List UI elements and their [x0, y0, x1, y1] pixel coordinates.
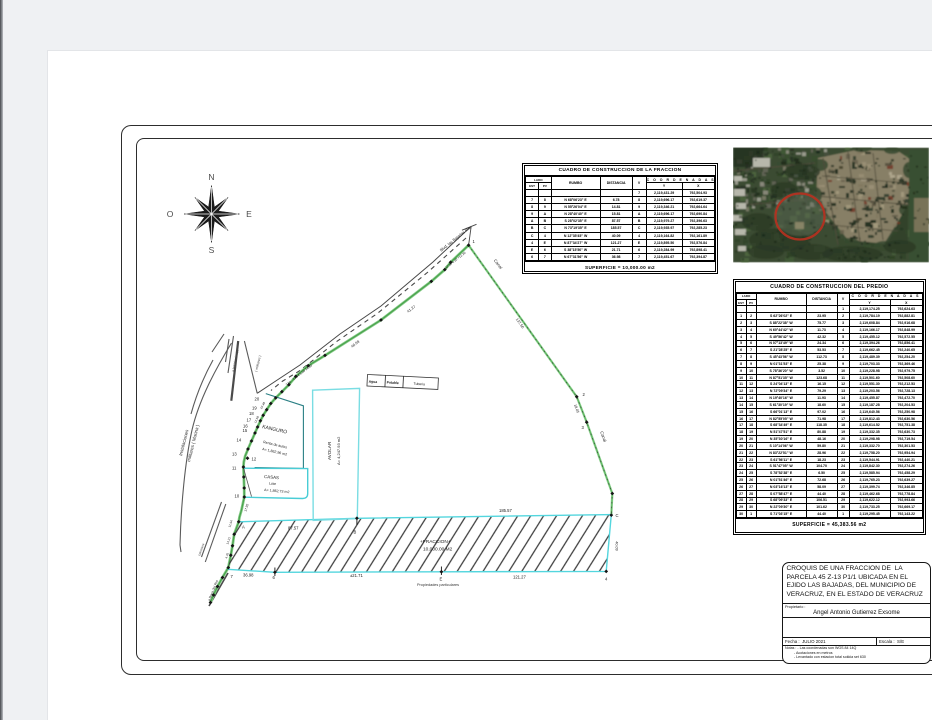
svg-text:20: 20	[255, 397, 260, 402]
svg-text:( militares ): ( militares )	[254, 355, 262, 372]
svg-text:36.98: 36.98	[243, 573, 254, 578]
svg-text:CASAS: CASAS	[264, 474, 279, 480]
svg-text:14: 14	[237, 438, 242, 443]
svg-text:S: S	[209, 245, 215, 255]
svg-text:2: 2	[583, 392, 586, 397]
svg-text:A= 4,247.93 m2: A= 4,247.93 m2	[336, 436, 341, 465]
svg-text:121.27: 121.27	[513, 575, 526, 580]
svg-text:10.48: 10.48	[259, 401, 266, 410]
svg-text:7: 7	[231, 574, 234, 579]
svg-text:12.04 5.00 14.63: 12.04 5.00 14.63	[292, 363, 313, 381]
svg-text:B: B	[354, 530, 357, 535]
svg-text:17.92: 17.92	[244, 503, 250, 512]
svg-text:Agua: Agua	[369, 380, 378, 384]
svg-text:41.27: 41.27	[406, 305, 416, 314]
svg-text:14.21: 14.21	[225, 536, 231, 545]
svg-text:1: 1	[473, 239, 476, 244]
svg-text:13: 13	[232, 452, 237, 457]
svg-text:19: 19	[252, 406, 257, 411]
svg-text:a Instalaciones: a Instalaciones	[231, 349, 240, 372]
svg-text:Canal: Canal	[599, 430, 607, 442]
svg-text:15: 15	[243, 428, 248, 433]
svg-text:11.94: 11.94	[228, 519, 234, 527]
svg-text:11: 11	[232, 466, 237, 471]
svg-text:10: 10	[235, 494, 240, 499]
svg-text:137.56: 137.56	[515, 318, 525, 330]
svg-text:3: 3	[582, 425, 585, 430]
svg-text:Lote: Lote	[269, 482, 276, 487]
svg-text:12: 12	[252, 457, 257, 462]
svg-text:N: N	[208, 172, 214, 182]
svg-text:Canal: Canal	[493, 258, 504, 270]
svg-text:KANGURO: KANGURO	[262, 424, 288, 436]
svg-text:185.57: 185.57	[499, 508, 512, 513]
svg-text:87.57: 87.57	[288, 526, 299, 531]
svg-text:E: E	[246, 209, 252, 219]
svg-text:militares ( Marina ): militares ( Marina )	[186, 424, 200, 463]
svg-text:40.09: 40.09	[615, 541, 619, 551]
svg-text:18: 18	[249, 411, 254, 416]
svg-text:Propiedades particulares: Propiedades particulares	[417, 583, 459, 587]
svg-text:O: O	[167, 209, 174, 219]
svg-text:A: A	[242, 525, 245, 530]
svg-text:+FRACCION+: +FRACCION+	[420, 539, 451, 545]
svg-text:C: C	[616, 513, 619, 518]
svg-text:4: 4	[605, 577, 608, 582]
svg-text:Tuberia: Tuberia	[414, 382, 426, 387]
svg-text:E: E	[440, 577, 443, 582]
svg-text:12.30 6.10 +12.20: 12.30 6.10 +12.20	[444, 251, 466, 270]
svg-text:Potable: Potable	[387, 380, 400, 385]
svg-text:±21.71: ±21.71	[350, 573, 363, 578]
svg-text:46.99: 46.99	[350, 340, 360, 349]
svg-text:AVOLAR: AVOLAR	[327, 441, 332, 460]
svg-text:A= 1,862.73 m2: A= 1,862.73 m2	[264, 488, 290, 494]
svg-text:17: 17	[247, 418, 252, 423]
svg-text:10,000.00 M2: 10,000.00 M2	[423, 547, 453, 553]
